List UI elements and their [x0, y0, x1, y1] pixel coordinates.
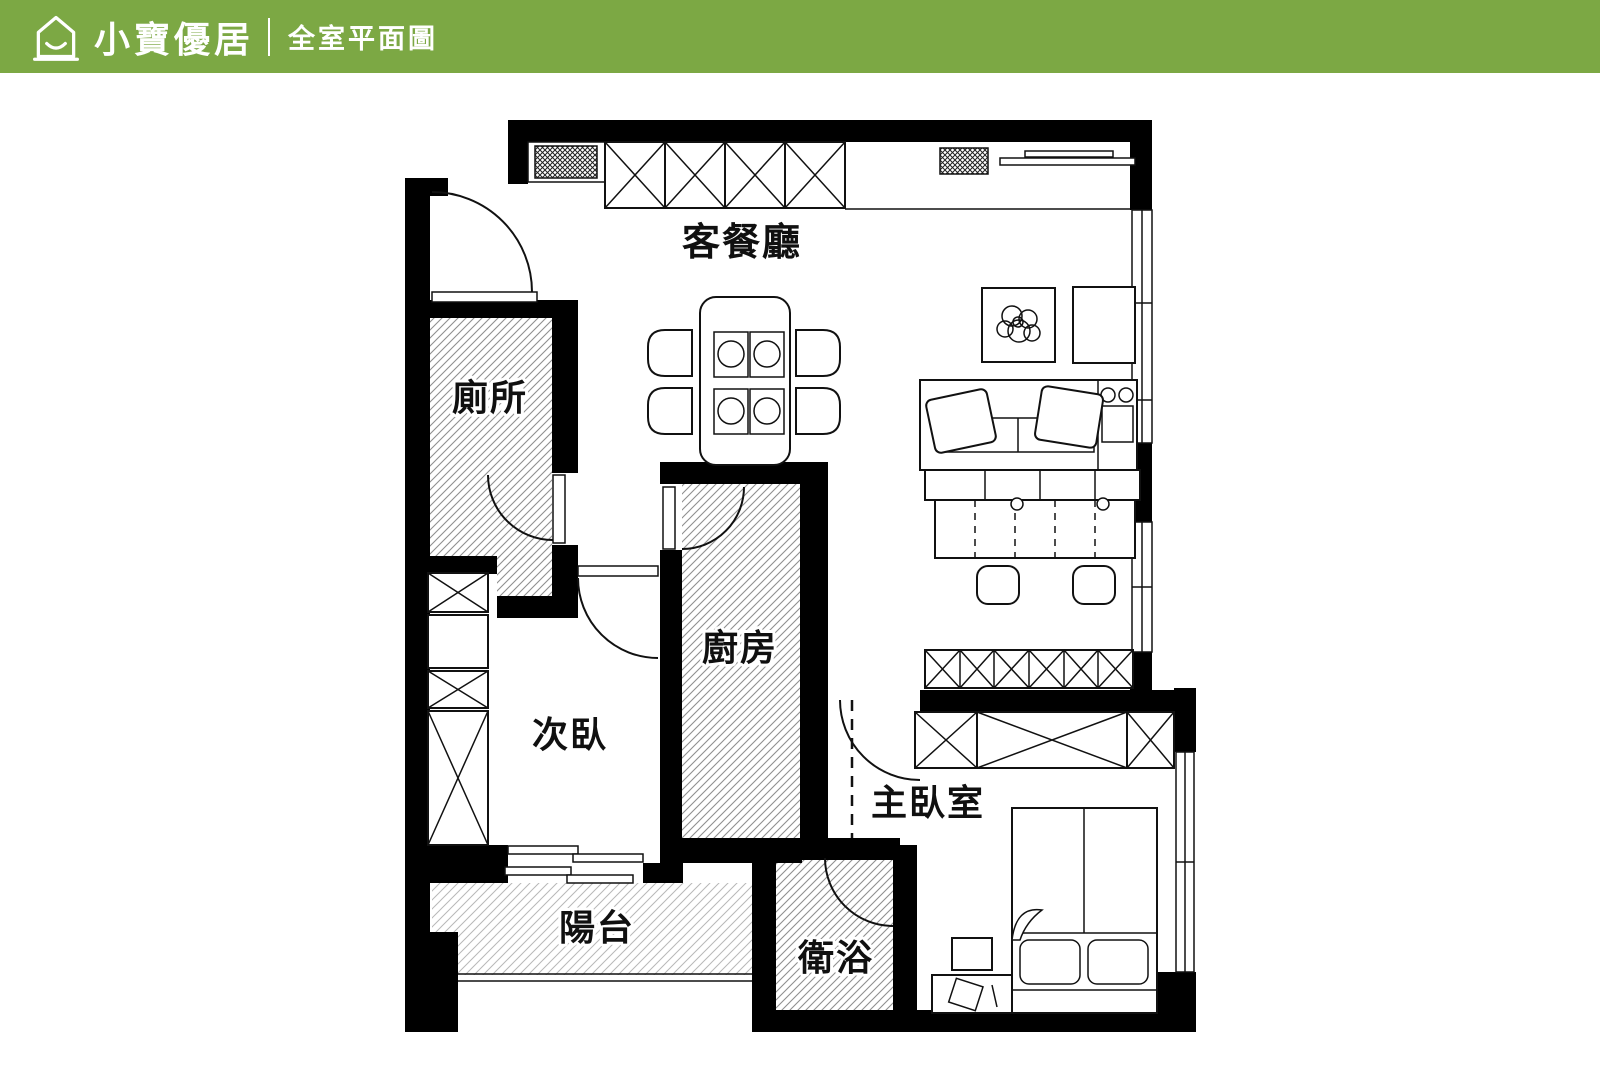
- bed: [1012, 808, 1157, 1013]
- x-cabinet: [605, 142, 845, 208]
- balcony-railing: [458, 974, 752, 981]
- decor-box: [535, 146, 597, 178]
- movable-desk: [935, 498, 1135, 558]
- toilet-floor-hatch: [430, 318, 552, 560]
- wall: [552, 318, 578, 473]
- decor-box-frame: [1073, 287, 1135, 363]
- wall: [497, 596, 578, 618]
- wall: [405, 932, 458, 1032]
- room-label-toilet: 廁所: [452, 377, 528, 418]
- sofa: [920, 380, 1137, 470]
- entry-cabinet-row: [528, 142, 1135, 209]
- tv-console: [1000, 151, 1135, 165]
- second-bedroom-door: [578, 566, 658, 658]
- wall: [643, 863, 683, 883]
- pillow: [1020, 940, 1080, 984]
- wall: [752, 1010, 917, 1032]
- wall: [1174, 688, 1196, 752]
- room-label-second-bedroom: 次臥: [532, 714, 608, 755]
- wall: [508, 120, 1152, 142]
- wall: [552, 545, 578, 598]
- wall: [660, 550, 682, 863]
- wall: [405, 556, 497, 574]
- bedroom-desk: [932, 975, 1012, 1013]
- floor-plan: 客餐廳 廁所 廚房 次臥 主臥室 陽台 衛浴: [0, 0, 1600, 1067]
- wall: [752, 838, 900, 860]
- room-label-kitchen: 廚房: [702, 627, 778, 668]
- bathroom-floor-hatch: [776, 860, 893, 1010]
- decor-box: [940, 148, 988, 174]
- room-label-bathroom: 衛浴: [797, 937, 874, 978]
- room-label-balcony: 陽台: [559, 907, 635, 948]
- balcony-sliding-door: [505, 846, 643, 883]
- master-wardrobe-row: [915, 712, 1174, 768]
- decor-plant-box: [982, 288, 1055, 362]
- stool: [1073, 566, 1115, 604]
- room-label-living-dining: 客餐廳: [682, 221, 802, 264]
- low-cabinet-row: [925, 650, 1133, 688]
- sofa-pillow: [1034, 385, 1104, 448]
- dining-set: [648, 297, 840, 465]
- wall: [920, 690, 1196, 712]
- dining-table: [700, 297, 790, 465]
- wall: [405, 178, 430, 932]
- entry-door: [432, 192, 537, 302]
- stool: [977, 566, 1019, 604]
- pillow: [1088, 940, 1148, 984]
- wall: [752, 860, 776, 1010]
- console-table: [925, 470, 1140, 500]
- wardrobe-column: [428, 573, 488, 845]
- room-label-master-bedroom: 主臥室: [871, 782, 985, 823]
- sofa-pillow: [925, 388, 997, 454]
- wall: [430, 845, 508, 883]
- toilet-floor-hatch-notch: [497, 556, 552, 598]
- wall: [1130, 142, 1152, 210]
- wall: [508, 120, 528, 184]
- nightstand: [952, 938, 992, 970]
- wall: [800, 462, 828, 838]
- wall: [893, 845, 917, 1032]
- window: [1176, 752, 1194, 972]
